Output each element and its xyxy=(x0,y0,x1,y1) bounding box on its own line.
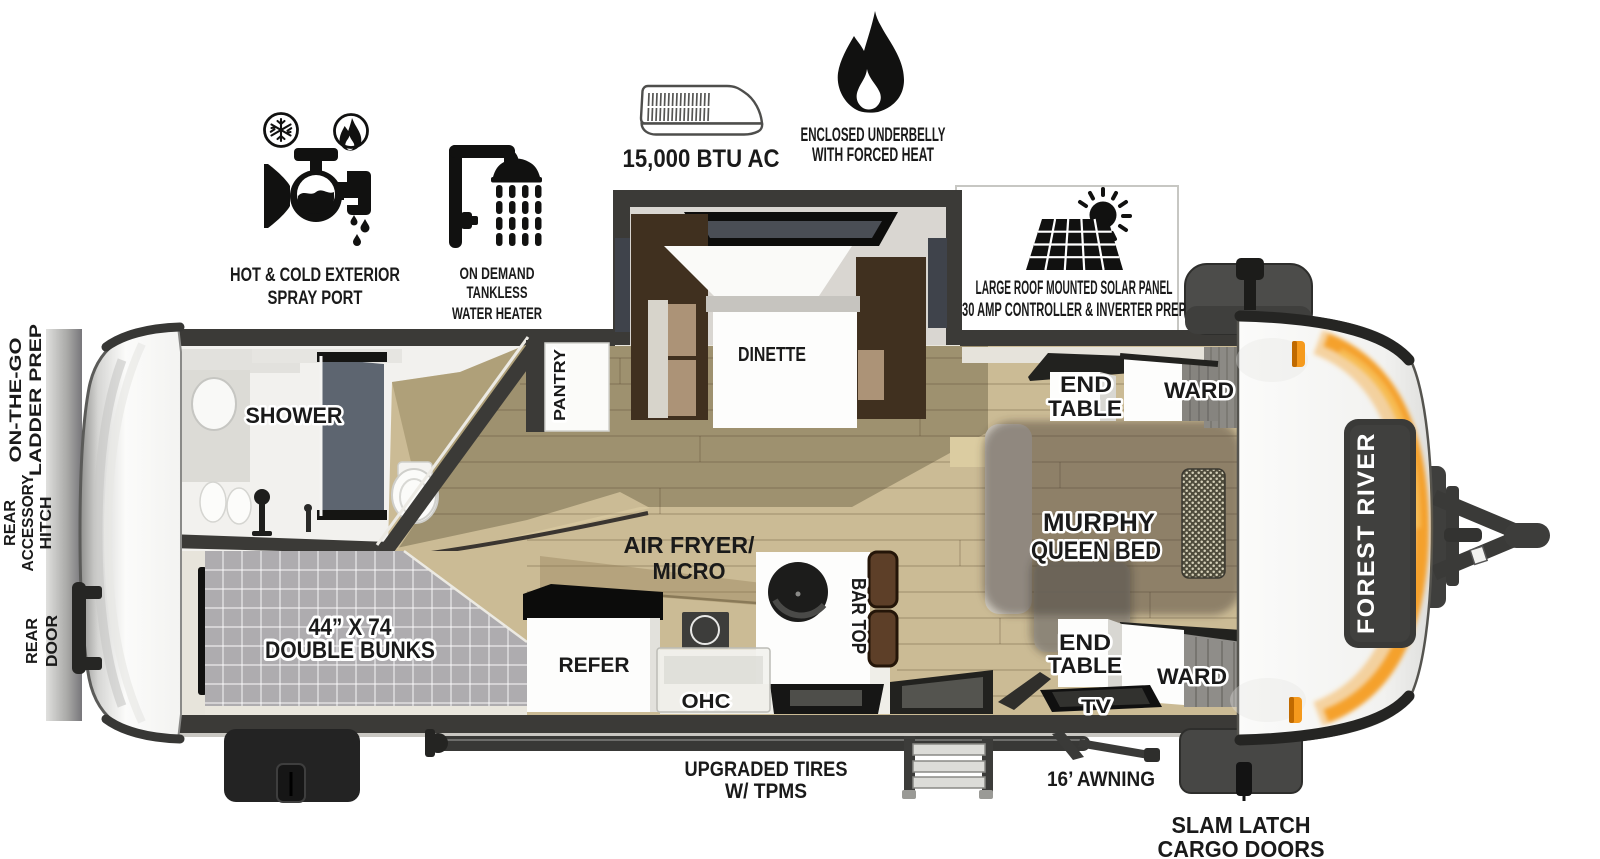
svg-text:LADDER PREP: LADDER PREP xyxy=(26,324,45,476)
svg-text:16’ AWNING: 16’ AWNING xyxy=(1047,768,1155,791)
svg-text:TV: TV xyxy=(1081,697,1111,718)
svg-text:REAR: REAR xyxy=(24,618,41,664)
svg-text:FOREST RIVER: FOREST RIVER xyxy=(1353,432,1380,634)
svg-text:30 AMP CONTROLLER & INVERTER P: 30 AMP CONTROLLER & INVERTER PREP xyxy=(962,300,1186,321)
svg-text:WITH FORCED HEAT: WITH FORCED HEAT xyxy=(812,145,934,166)
svg-text:MICRO: MICRO xyxy=(653,558,726,584)
svg-text:AIR FRYER/: AIR FRYER/ xyxy=(624,532,756,558)
svg-text:WARD: WARD xyxy=(1157,664,1227,689)
svg-text:ENCLOSED UNDERBELLY: ENCLOSED UNDERBELLY xyxy=(801,125,946,146)
svg-text:SLAM LATCH: SLAM LATCH xyxy=(1172,812,1311,838)
svg-text:W/ TPMS: W/ TPMS xyxy=(725,780,807,803)
svg-text:PANTRY: PANTRY xyxy=(552,349,569,421)
svg-text:DOUBLE BUNKS: DOUBLE BUNKS xyxy=(265,637,435,664)
svg-text:WARD: WARD xyxy=(1164,378,1234,403)
svg-text:END: END xyxy=(1059,630,1111,655)
svg-text:HOT & COLD EXTERIOR: HOT & COLD EXTERIOR xyxy=(230,265,400,286)
svg-text:SHOWER: SHOWER xyxy=(246,403,343,428)
svg-text:MURPHY: MURPHY xyxy=(1043,509,1155,537)
svg-text:END: END xyxy=(1060,372,1112,397)
svg-text:CARGO DOORS: CARGO DOORS xyxy=(1158,836,1325,859)
svg-text:REFER: REFER xyxy=(559,654,630,677)
svg-text:SPRAY PORT: SPRAY PORT xyxy=(268,288,363,309)
svg-text:TABLE: TABLE xyxy=(1048,396,1122,421)
svg-text:15,000 BTU AC: 15,000 BTU AC xyxy=(623,145,780,173)
svg-text:ON DEMAND: ON DEMAND xyxy=(460,264,535,283)
svg-text:LARGE ROOF MOUNTED SOLAR PANEL: LARGE ROOF MOUNTED SOLAR PANEL xyxy=(976,278,1173,299)
svg-text:ON-THE-GO: ON-THE-GO xyxy=(6,338,25,463)
svg-text:WATER HEATER: WATER HEATER xyxy=(452,304,542,323)
svg-text:UPGRADED TIRES: UPGRADED TIRES xyxy=(685,758,848,781)
svg-text:OHC: OHC xyxy=(682,691,731,713)
svg-text:QUEEN BED: QUEEN BED xyxy=(1031,537,1161,565)
svg-text:BAR TOP: BAR TOP xyxy=(847,578,869,654)
svg-text:DINETTE: DINETTE xyxy=(738,344,806,366)
svg-text:HITCH: HITCH xyxy=(38,497,55,550)
svg-text:REAR: REAR xyxy=(2,500,19,546)
svg-text:ACCESSORY: ACCESSORY xyxy=(20,474,37,571)
svg-text:TANKLESS: TANKLESS xyxy=(467,283,528,302)
svg-text:DOOR: DOOR xyxy=(44,615,61,667)
svg-text:TABLE: TABLE xyxy=(1048,653,1122,678)
